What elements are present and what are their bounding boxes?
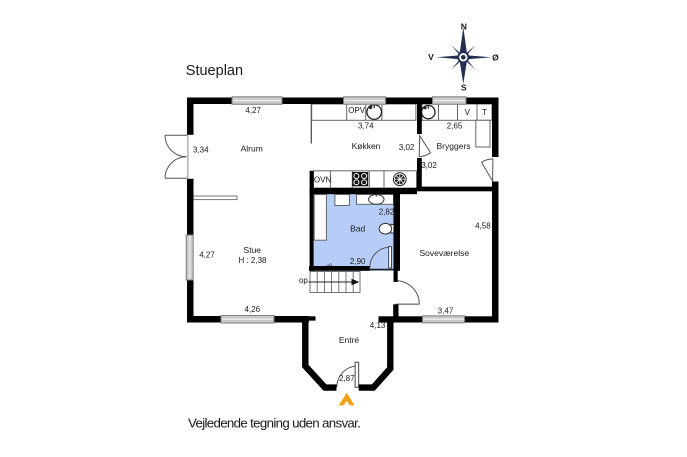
svg-text:N: N	[461, 21, 467, 31]
svg-text:OVN: OVN	[314, 175, 332, 184]
svg-text:Ø: Ø	[492, 52, 499, 62]
svg-text:2,87: 2,87	[339, 374, 355, 383]
svg-text:H : 2,38: H : 2,38	[238, 256, 267, 265]
svg-text:3,34: 3,34	[193, 145, 209, 154]
svg-text:Bad: Bad	[350, 224, 365, 234]
svg-text:Stue: Stue	[244, 245, 262, 255]
svg-text:Soveværelse: Soveværelse	[419, 248, 469, 258]
svg-text:Entré: Entré	[339, 335, 360, 345]
svg-text:4,26: 4,26	[245, 305, 261, 314]
svg-text:4,58: 4,58	[475, 221, 491, 230]
svg-text:Køkken: Køkken	[352, 141, 381, 151]
svg-text:Alrum: Alrum	[241, 144, 263, 154]
svg-text:OPV: OPV	[348, 106, 366, 115]
svg-text:2,65: 2,65	[447, 121, 463, 130]
svg-text:Stueplan: Stueplan	[186, 63, 243, 79]
svg-text:3,02: 3,02	[399, 143, 415, 152]
svg-text:3,74: 3,74	[358, 122, 374, 131]
svg-text:2,90: 2,90	[350, 257, 366, 266]
svg-text:op: op	[299, 276, 308, 285]
svg-text:T: T	[482, 108, 487, 117]
svg-text:3,02: 3,02	[421, 161, 437, 170]
svg-text:4,27: 4,27	[245, 106, 261, 115]
svg-text:Vejledende tegning uden ansvar: Vejledende tegning uden ansvar.	[188, 415, 360, 430]
svg-text:Bryggers: Bryggers	[436, 141, 470, 151]
svg-text:2,82: 2,82	[379, 208, 395, 217]
svg-text:4,13: 4,13	[370, 321, 386, 330]
svg-text:S: S	[461, 82, 467, 92]
svg-text:V: V	[428, 52, 434, 62]
svg-text:V: V	[465, 108, 471, 117]
svg-text:3,47: 3,47	[438, 306, 454, 315]
svg-text:4,27: 4,27	[199, 250, 215, 259]
